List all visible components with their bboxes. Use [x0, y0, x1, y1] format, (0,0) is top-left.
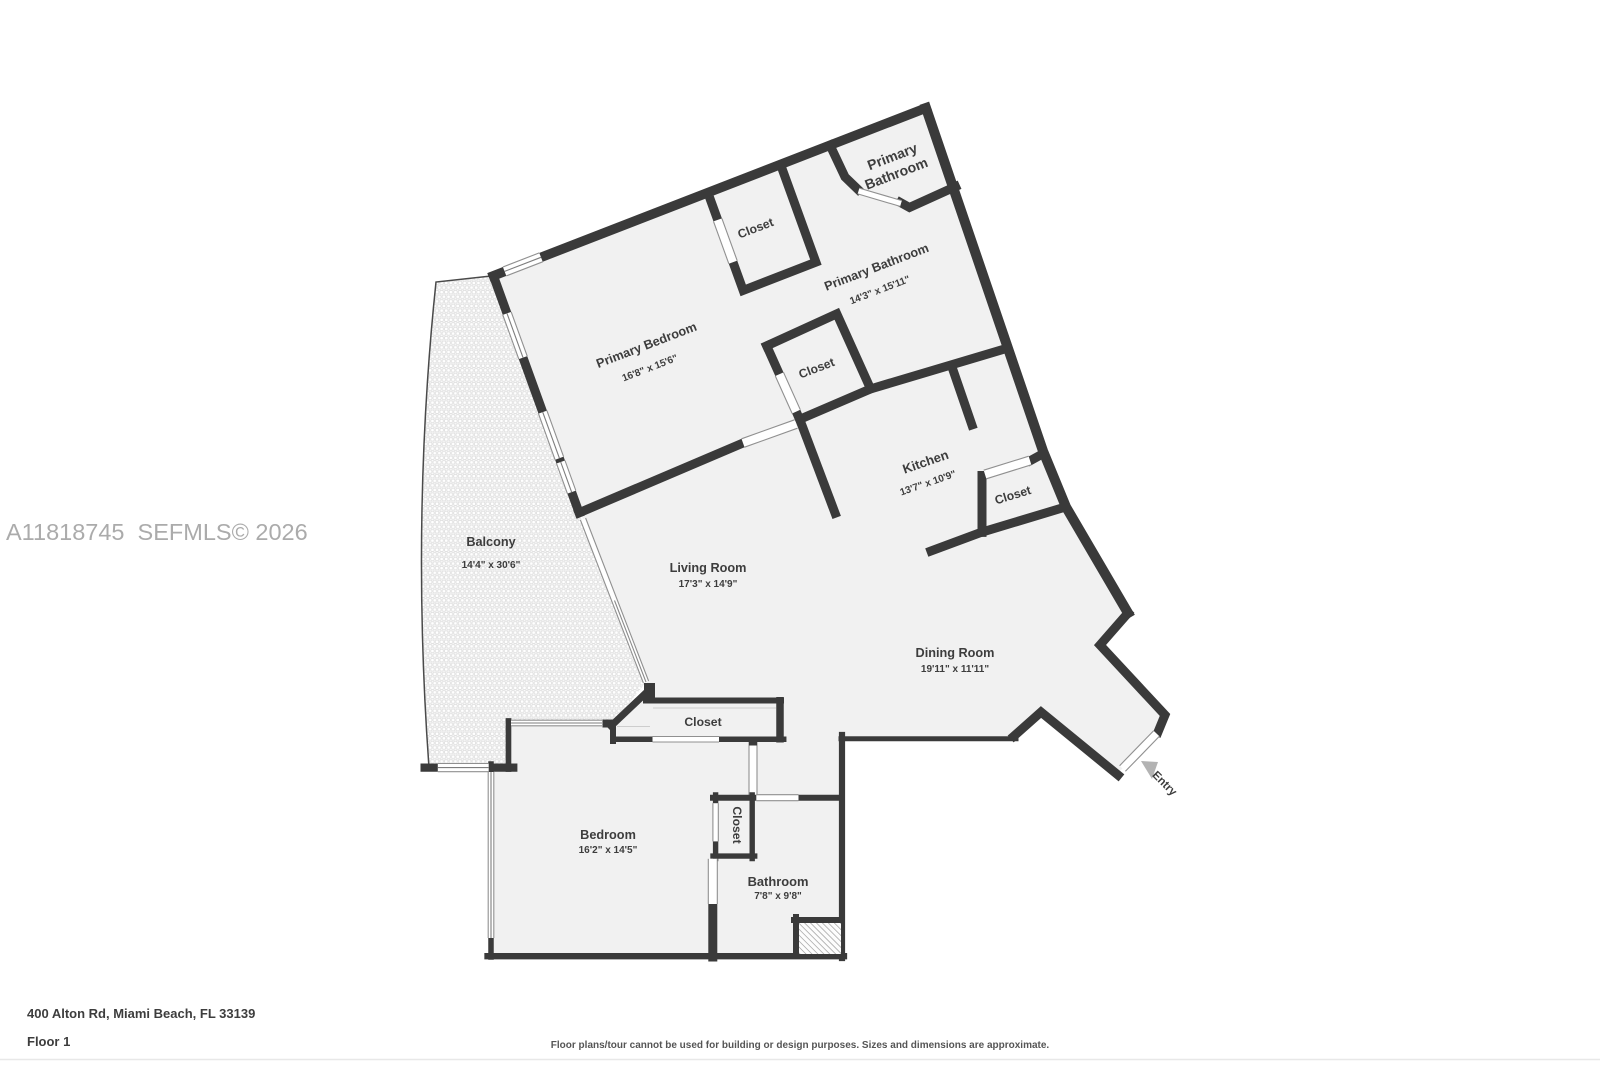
- svg-text:400 Alton Rd, Miami Beach, FL: 400 Alton Rd, Miami Beach, FL 33139: [27, 1006, 255, 1021]
- svg-text:A11818745 SEFMLS© 2026: A11818745 SEFMLS© 2026: [6, 519, 308, 545]
- svg-text:Closet: Closet: [730, 806, 744, 843]
- svg-text:Closet: Closet: [684, 715, 721, 729]
- svg-text:19'11" x 11'11": 19'11" x 11'11": [921, 664, 989, 675]
- svg-text:14'4" x 30'6": 14'4" x 30'6": [462, 560, 521, 571]
- svg-text:Balcony: Balcony: [466, 535, 515, 549]
- svg-text:7'8" x 9'8": 7'8" x 9'8": [754, 891, 802, 902]
- svg-text:Bathroom: Bathroom: [748, 874, 809, 889]
- svg-text:17'3" x 14'9": 17'3" x 14'9": [679, 579, 738, 590]
- svg-text:Bedroom: Bedroom: [580, 828, 636, 842]
- svg-text:16'2" x 14'5": 16'2" x 14'5": [579, 845, 638, 856]
- svg-text:Living Room: Living Room: [670, 561, 747, 575]
- svg-text:Dining Room: Dining Room: [916, 646, 995, 660]
- svg-text:Floor 1: Floor 1: [27, 1034, 70, 1049]
- svg-text:Floor plans/tour cannot be use: Floor plans/tour cannot be used for buil…: [551, 1040, 1050, 1051]
